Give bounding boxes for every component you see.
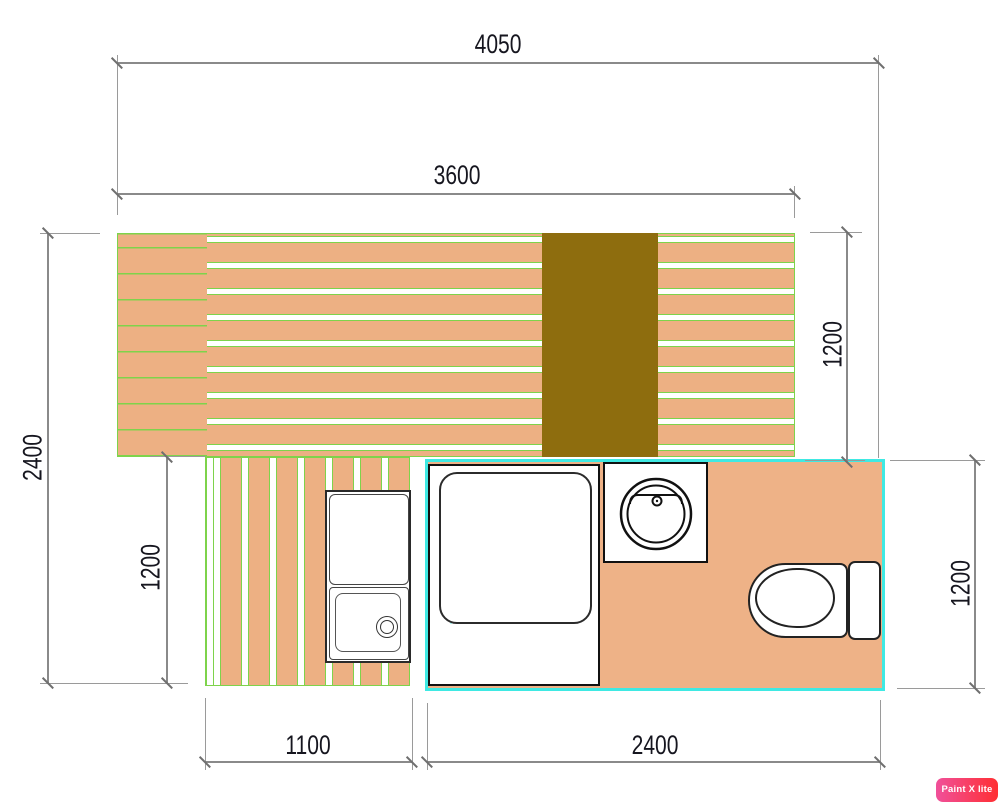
ext-line [880, 700, 881, 770]
ext-line [890, 460, 985, 461]
drain-icon [376, 616, 398, 638]
kitchen-sink-basin [329, 587, 409, 660]
ext-line [117, 55, 118, 215]
ext-line [810, 232, 862, 233]
dim-line-2400-bottom [427, 761, 880, 763]
bathroom-room [425, 459, 885, 691]
ext-line [794, 186, 795, 218]
kitchen-sink-unit [325, 490, 411, 663]
faucet-dot-icon [656, 500, 658, 502]
dim-line-4050 [117, 62, 879, 64]
ext-line [805, 460, 865, 461]
dim-label-bathroom-width: 2400 [610, 732, 700, 759]
floor-plan-canvas: 4050 3600 2400 1200 1200 1200 1100 2400 … [0, 0, 1000, 809]
counter-top [329, 494, 409, 585]
dim-line-1200-left [166, 457, 168, 683]
dim-label-bathroom-depth: 1200 [948, 539, 975, 629]
dim-label-deck-right-depth: 1200 [820, 300, 847, 390]
olive-runner-strip [542, 233, 658, 457]
watermark-label: Paint X lite [942, 784, 993, 795]
toilet-bowl [755, 568, 835, 628]
dim-line-1100 [205, 761, 412, 763]
ext-line [150, 456, 205, 457]
dim-label-deck-width: 3600 [412, 162, 502, 189]
dim-label-walkway-width: 1100 [263, 732, 353, 759]
deck-horizontal-planks [117, 233, 795, 457]
shower-enclosure [428, 464, 600, 686]
dim-label-overall-width: 4050 [453, 31, 543, 58]
ext-line [205, 698, 206, 770]
watermark-badge: Paint X lite [936, 778, 998, 802]
kitchen-sink-basin-inner [335, 593, 401, 652]
drain-inner-icon [380, 620, 394, 634]
toilet [748, 561, 884, 642]
dim-line-3600 [117, 193, 795, 195]
shower-tray [439, 472, 592, 624]
wash-basin-cabinet [603, 462, 708, 563]
wash-basin-drawing [605, 464, 705, 560]
dim-label-lower-left-depth: 1200 [138, 523, 165, 613]
ext-line [897, 688, 985, 689]
deck-left-plank-column [118, 234, 207, 456]
ext-line [878, 55, 879, 458]
toilet-tank [848, 561, 881, 640]
ext-line [412, 698, 413, 770]
dim-label-overall-depth: 2400 [20, 413, 47, 503]
